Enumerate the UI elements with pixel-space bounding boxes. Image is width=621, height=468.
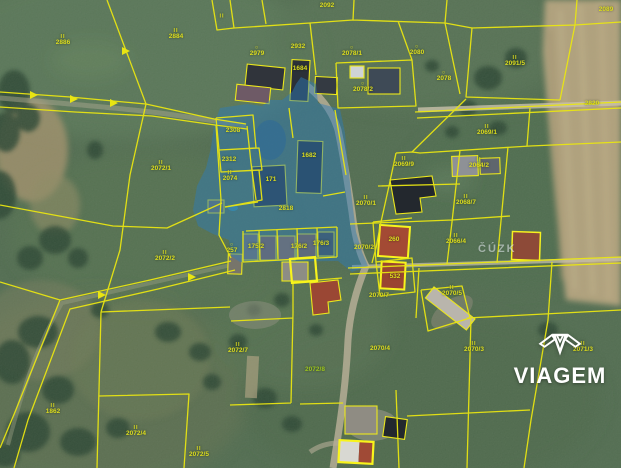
viagem-logo-icon <box>538 329 582 363</box>
cadastral-map[interactable]: II2886II2884II20922089○29792932○2078/1○2… <box>0 0 621 468</box>
map-graphics <box>0 0 621 468</box>
viagem-logo-text: VIAGEM <box>512 365 608 387</box>
cuzk-watermark: ČÚZK <box>478 243 517 255</box>
viagem-watermark: VIAGEM <box>512 329 608 387</box>
